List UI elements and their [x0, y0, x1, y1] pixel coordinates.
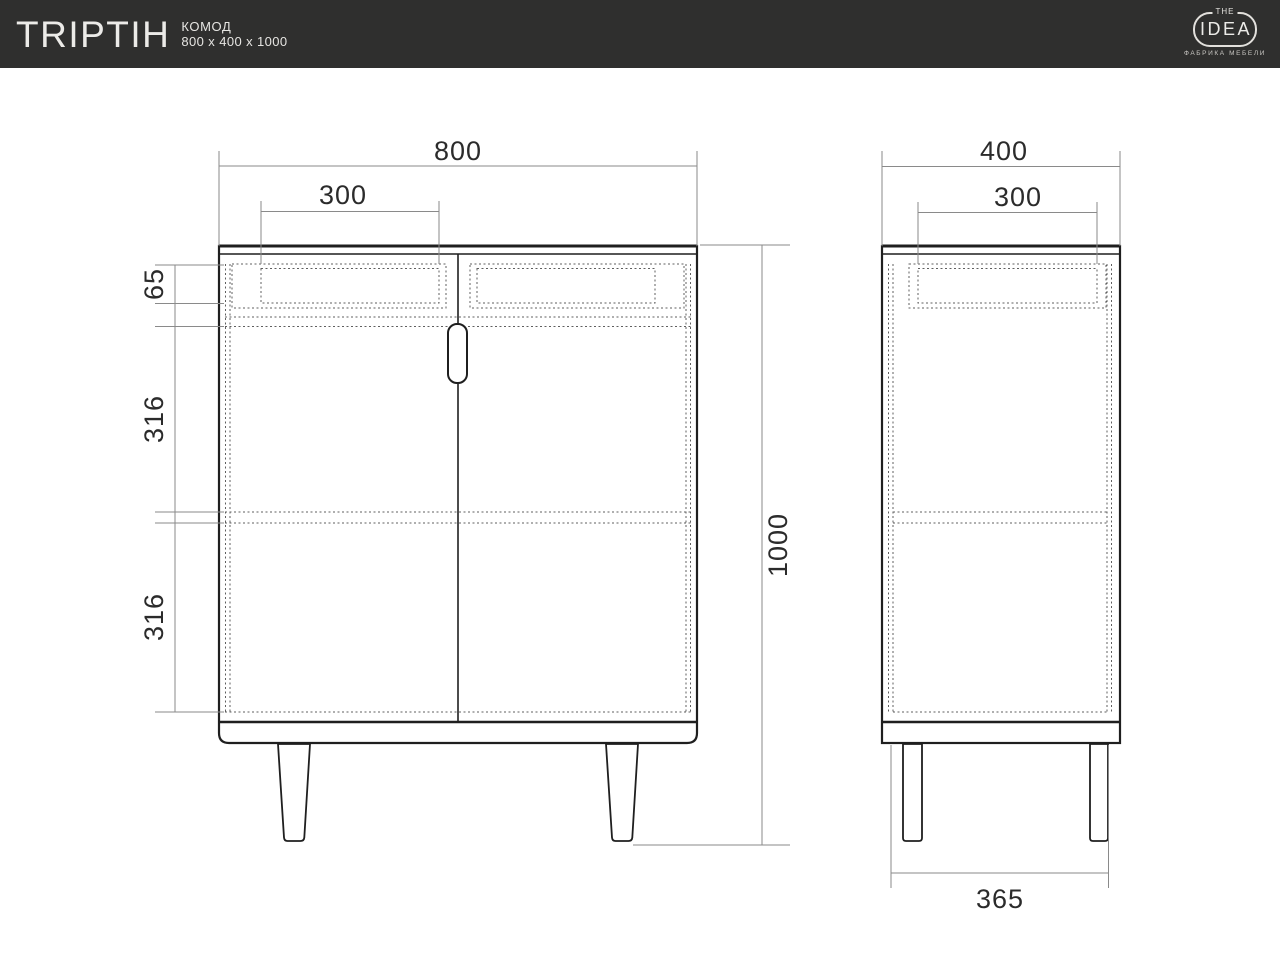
front-right-leg	[606, 744, 638, 841]
front-height-dimension: 1000	[633, 245, 793, 845]
overall-height-label: 1000	[763, 513, 793, 577]
side-leg-span-label: 365	[976, 884, 1024, 914]
front-drawer-width-dimension: 300	[261, 180, 439, 264]
side-view-legs	[903, 744, 1108, 841]
front-left-dimensions: 65 316 316	[139, 265, 224, 712]
front-view-legs	[278, 744, 638, 841]
front-width-label: 800	[434, 136, 482, 166]
side-view-hidden-edges	[889, 264, 1112, 712]
front-drawer-width-label: 300	[319, 180, 367, 210]
page: TRIPTIH КОМОД 800 x 400 x 1000 THE IDEA …	[0, 0, 1280, 959]
side-leg-span-dimension: 365	[891, 745, 1109, 914]
front-width-dimension: 800	[219, 136, 697, 246]
upper-section-label: 316	[139, 395, 169, 443]
door-handle	[448, 324, 467, 383]
drawer-height-label: 65	[139, 268, 169, 300]
technical-drawing: 800 300 65 316 316	[0, 0, 1280, 959]
front-left-leg	[278, 744, 310, 841]
front-view: 800 300 65 316 316	[139, 136, 793, 845]
side-front-leg	[903, 744, 922, 841]
side-back-leg	[1090, 744, 1108, 841]
side-depth-label: 400	[980, 136, 1028, 166]
lower-section-label: 316	[139, 593, 169, 641]
side-drawer-depth-dimension: 300	[918, 182, 1097, 264]
side-drawer-depth-label: 300	[994, 182, 1042, 212]
side-view-outline	[882, 246, 1120, 743]
side-view: 400 300 365	[882, 136, 1120, 914]
front-view-outline	[219, 246, 697, 743]
